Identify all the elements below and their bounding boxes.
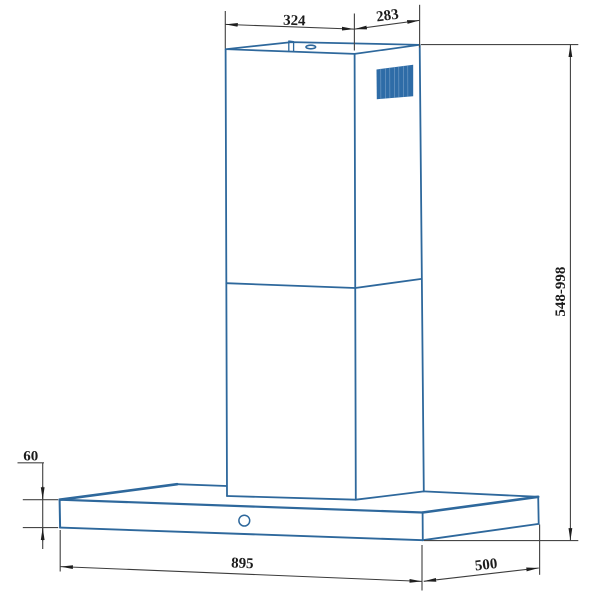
svg-text:500: 500: [474, 556, 498, 574]
svg-text:324: 324: [283, 13, 307, 30]
svg-text:895: 895: [231, 555, 254, 572]
svg-text:60: 60: [23, 448, 38, 464]
svg-text:548-998: 548-998: [553, 267, 569, 317]
svg-text:283: 283: [375, 7, 399, 26]
